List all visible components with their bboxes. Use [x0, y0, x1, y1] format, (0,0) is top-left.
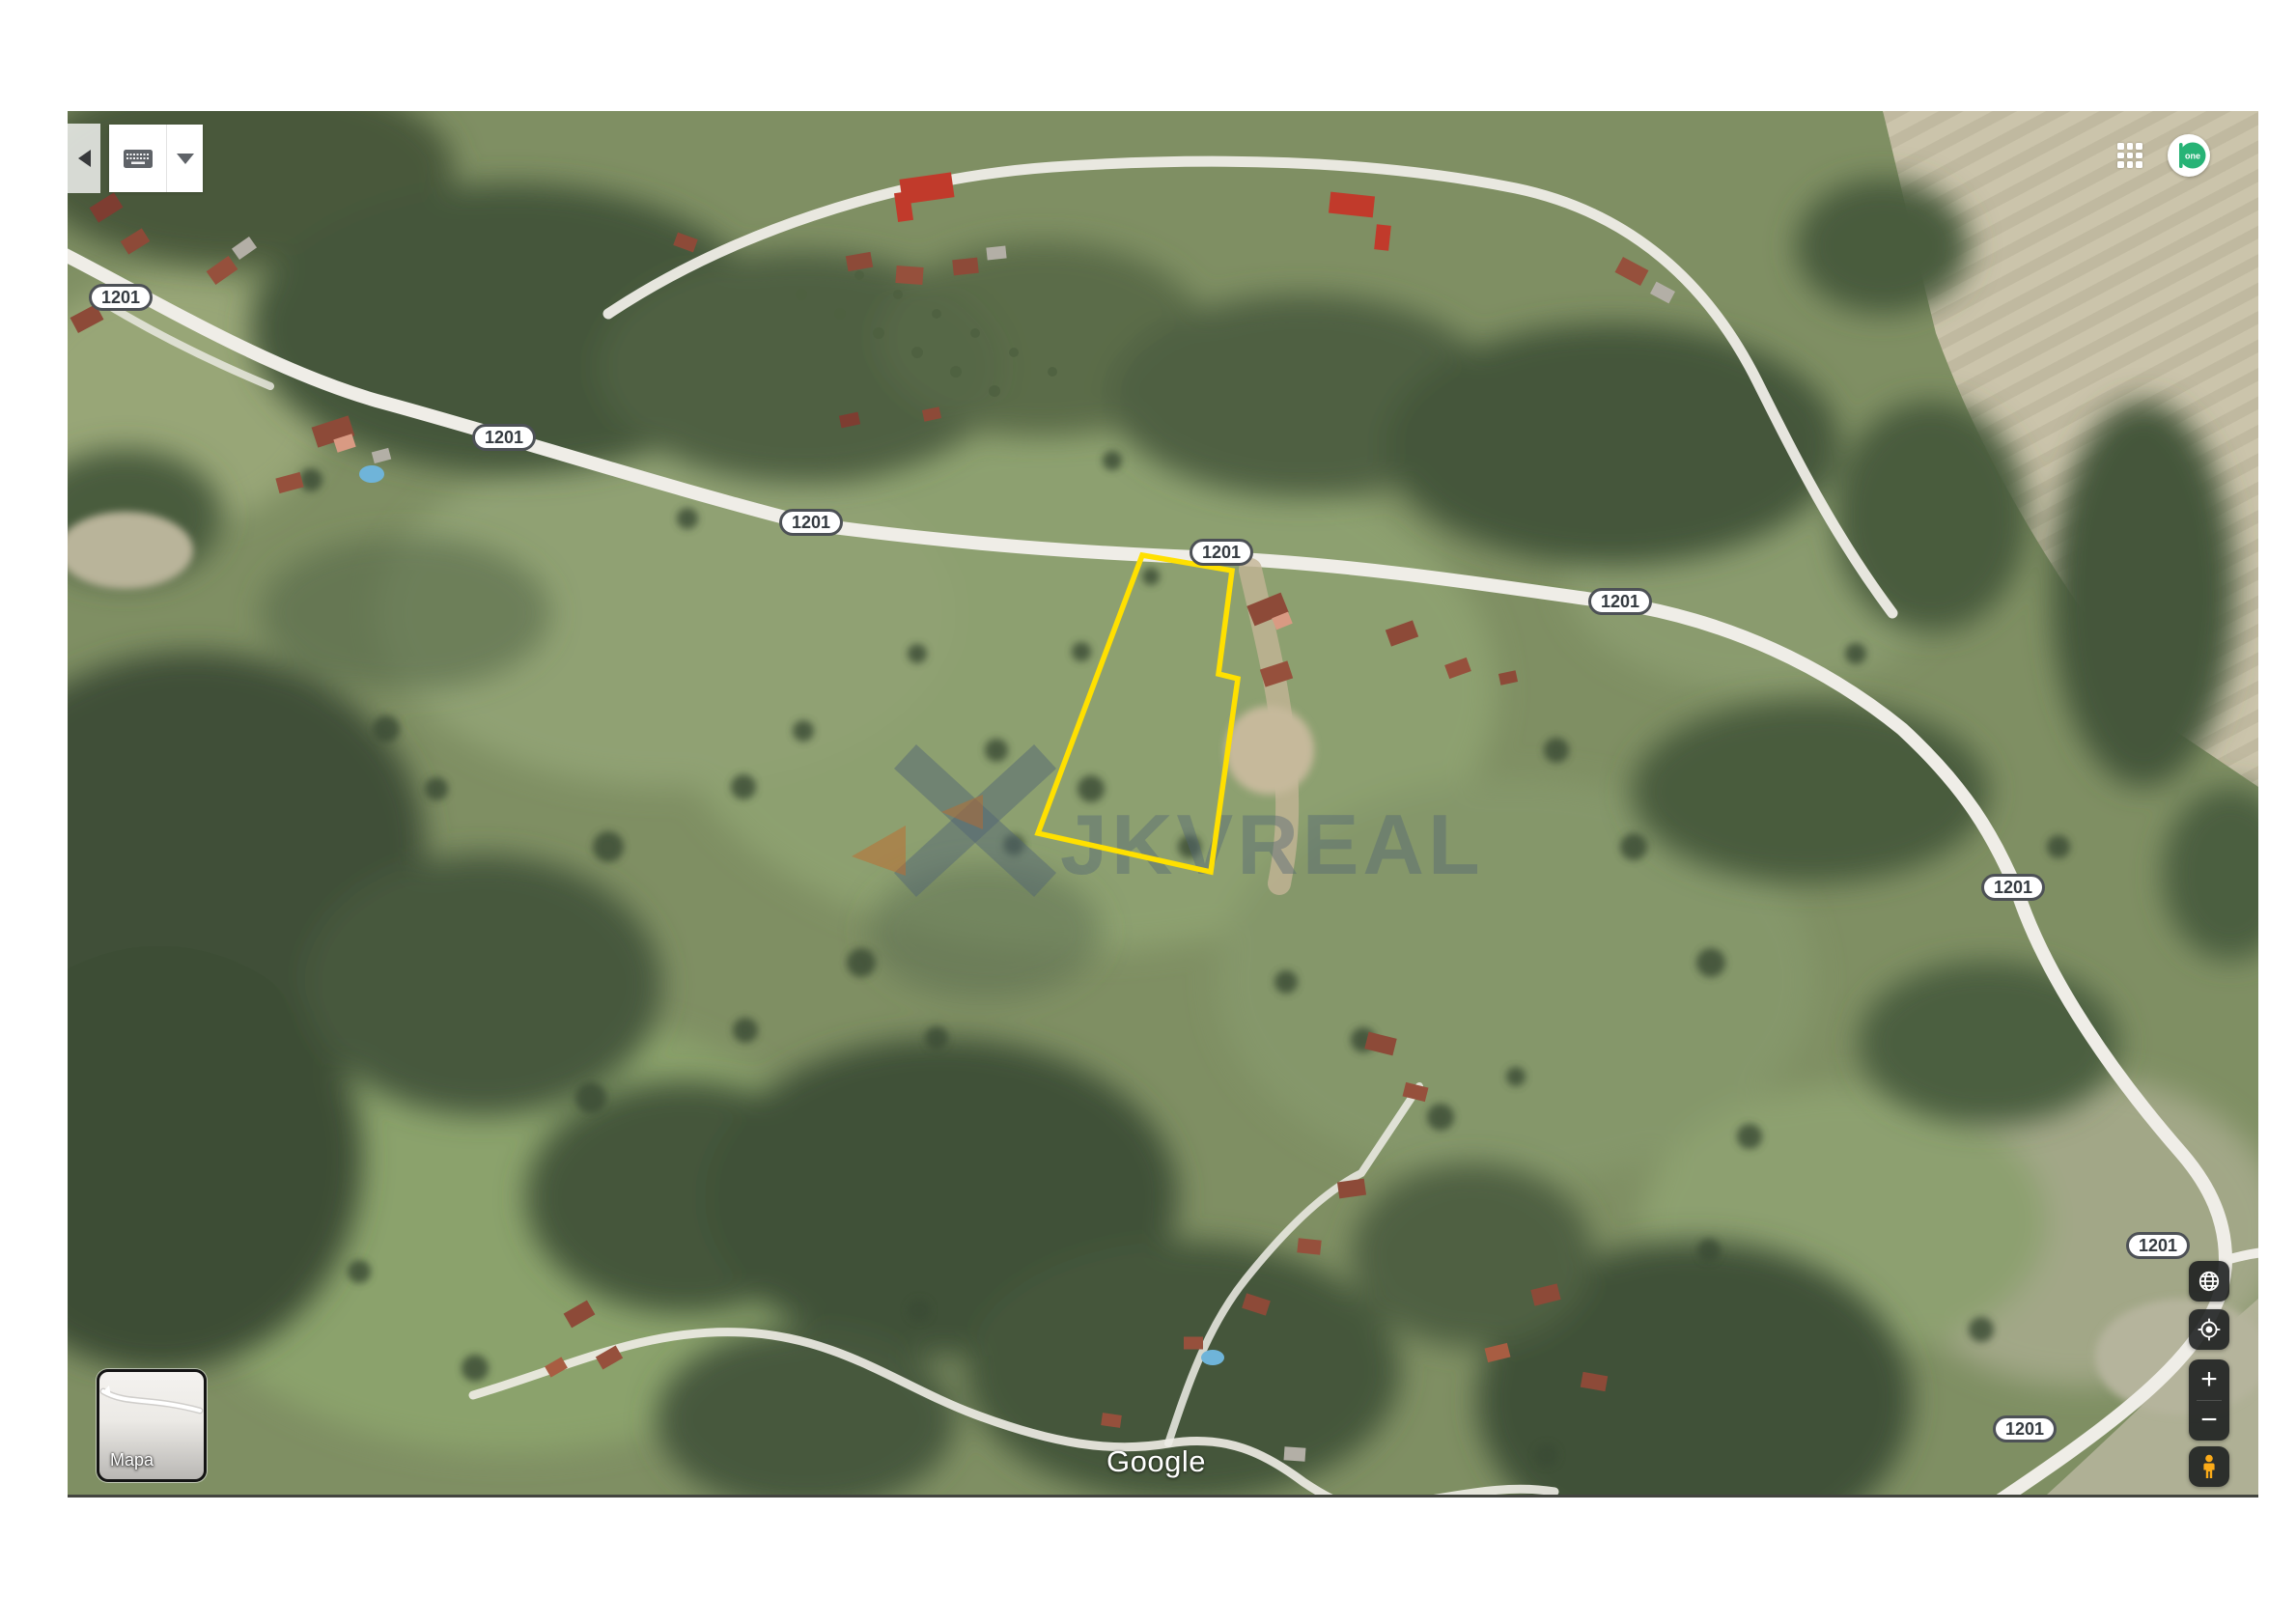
road-label: 1201 — [2126, 1232, 2190, 1259]
road-label: 1201 — [779, 509, 843, 536]
google-attribution: Google — [1106, 1445, 1206, 1478]
road-label: 1201 — [1993, 1415, 2057, 1442]
globe-view-button[interactable] — [2189, 1261, 2229, 1302]
back-arrow-icon — [78, 150, 91, 167]
keyboard-selector[interactable] — [109, 125, 203, 192]
account-logo-icon: one — [2168, 134, 2210, 177]
pegman-icon — [2198, 1454, 2221, 1479]
zoom-out-button[interactable]: − — [2189, 1401, 2229, 1442]
map-canvas[interactable]: JKVREAL 12011201120112011201120112011201… — [68, 111, 2258, 1498]
my-location-button[interactable] — [2189, 1309, 2229, 1350]
keyboard-icon — [109, 125, 167, 192]
my-location-icon — [2197, 1317, 2222, 1342]
map-type-toggle[interactable]: Mapa — [97, 1369, 207, 1482]
globe-icon — [2197, 1269, 2222, 1294]
road-label: 1201 — [1981, 874, 2045, 901]
chevron-down-icon — [177, 154, 194, 164]
apps-grid-button[interactable] — [2117, 143, 2142, 168]
account-button[interactable]: one — [2168, 134, 2210, 177]
road-label: 1201 — [1588, 588, 1652, 615]
road-label: 1201 — [89, 284, 153, 311]
satellite-imagery: JKVREAL — [68, 111, 2258, 1495]
agency-watermark-text: JKVREAL — [1060, 797, 1484, 892]
back-button[interactable] — [68, 124, 100, 193]
road-label: 1201 — [472, 424, 536, 451]
svg-text:one: one — [2185, 152, 2200, 161]
zoom-in-button[interactable]: + — [2189, 1359, 2229, 1400]
zoom-controls: + − — [2189, 1359, 2229, 1441]
road-label: 1201 — [1190, 539, 1253, 566]
pegman-button[interactable] — [2189, 1446, 2229, 1487]
map-type-label: Mapa — [110, 1450, 154, 1470]
